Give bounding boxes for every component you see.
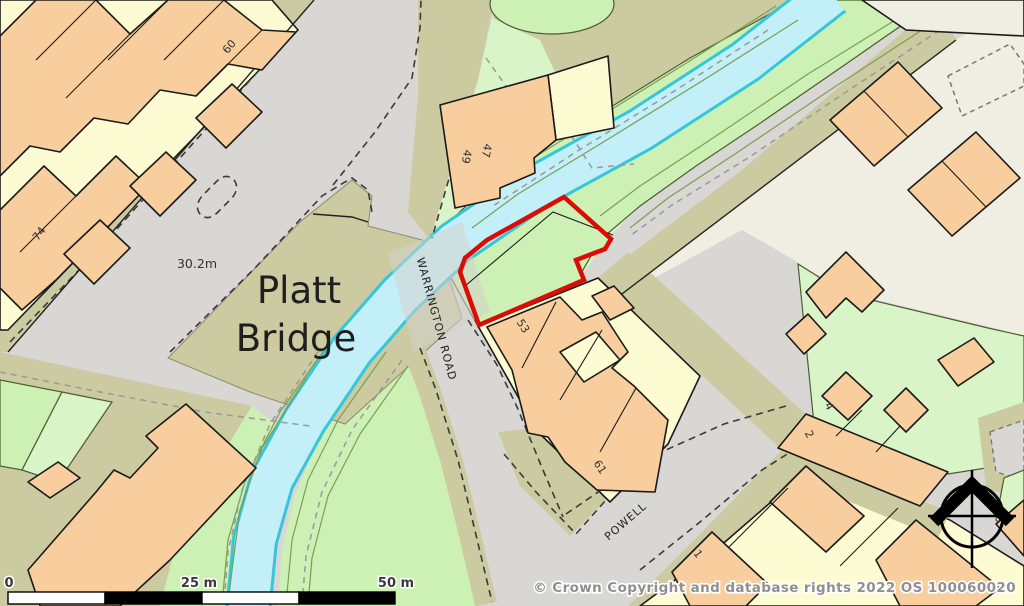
copyright-notice: © Crown Copyright and database rights 20… [533,580,1016,596]
place-name-line2: Bridge [236,317,357,360]
spot-height-label: 30.2m [177,256,217,271]
os-map-canvas: Platt Bridge 30.2m WARRINGTON ROAD POWEL… [0,0,1024,606]
place-name-line1: Platt [257,269,341,312]
map-viewport: Platt Bridge 30.2m WARRINGTON ROAD POWEL… [0,0,1024,606]
house-number-47: 47 [479,143,494,159]
scale-label-50m: 50 m [378,576,414,591]
scale-label-zero: 0 [4,576,13,591]
scale-label-25m: 25 m [181,576,217,591]
house-number-49: 49 [459,149,474,165]
